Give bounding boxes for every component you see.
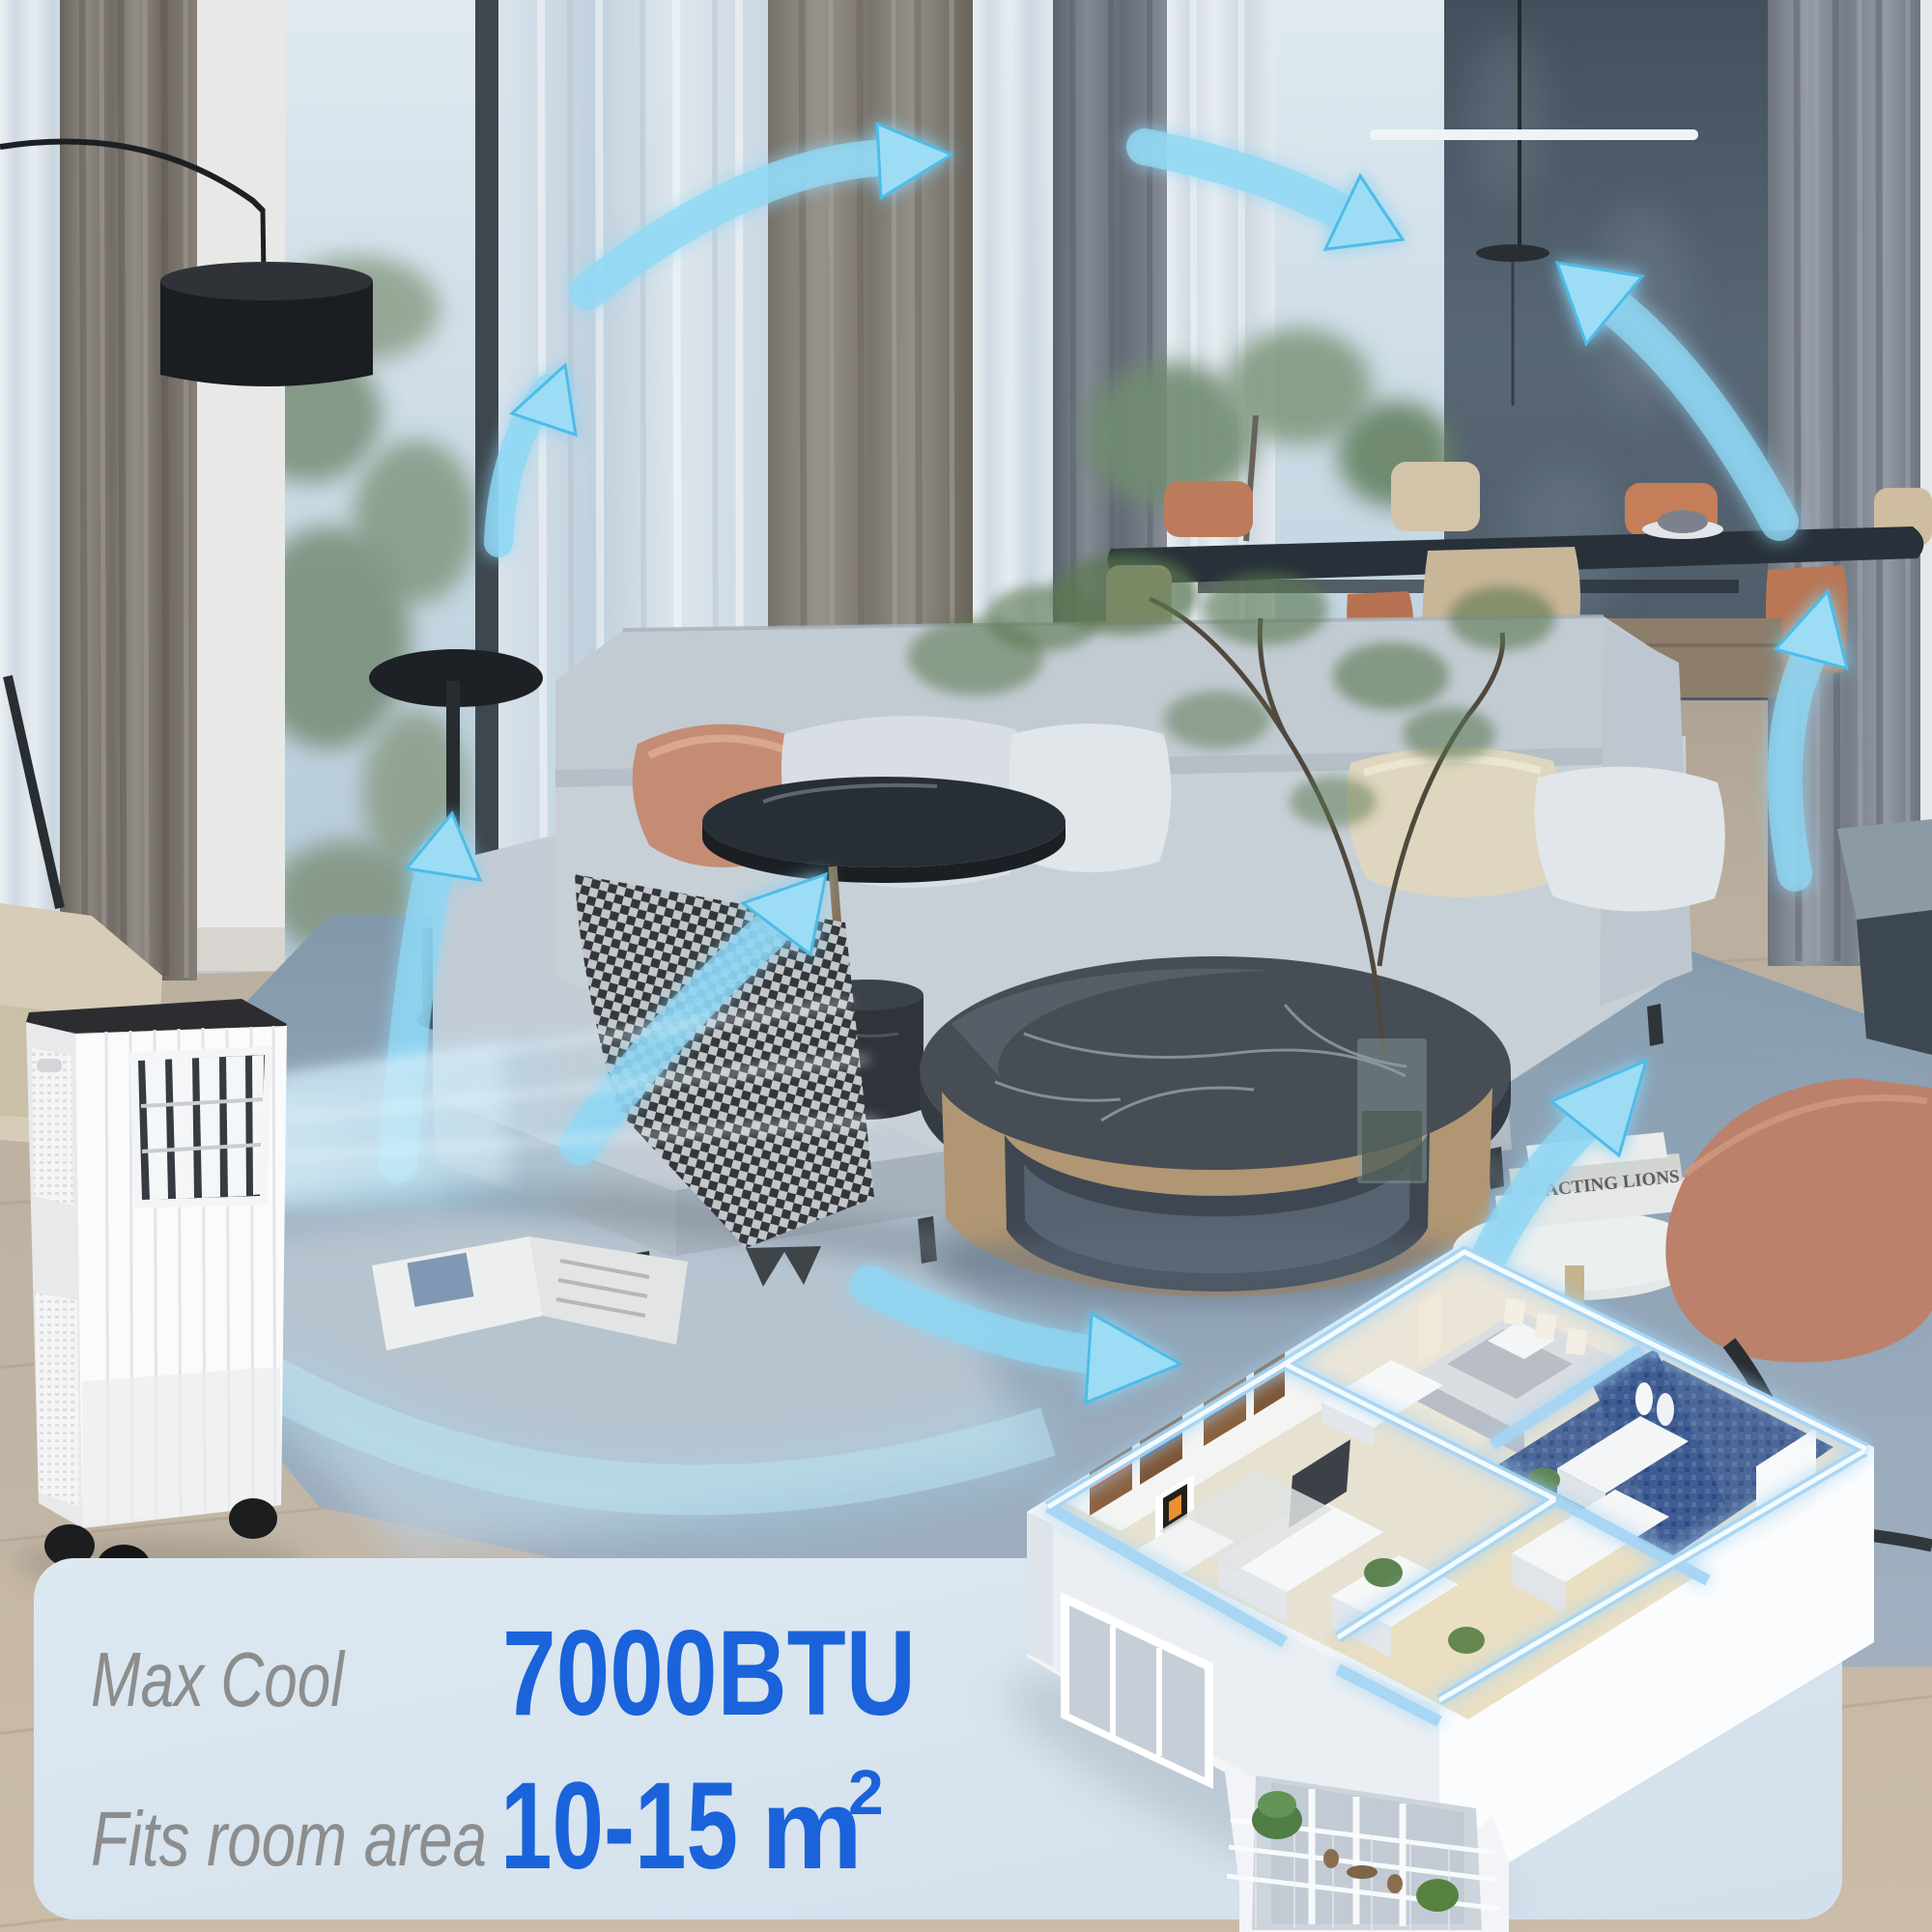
svg-text:Fits room area: Fits room area (91, 1796, 487, 1882)
svg-text:10-15: 10-15 (500, 1757, 738, 1895)
svg-text:2: 2 (848, 1756, 884, 1828)
svg-text:7000BTU: 7000BTU (502, 1606, 916, 1741)
svg-text:Max Cool: Max Cool (91, 1636, 346, 1722)
